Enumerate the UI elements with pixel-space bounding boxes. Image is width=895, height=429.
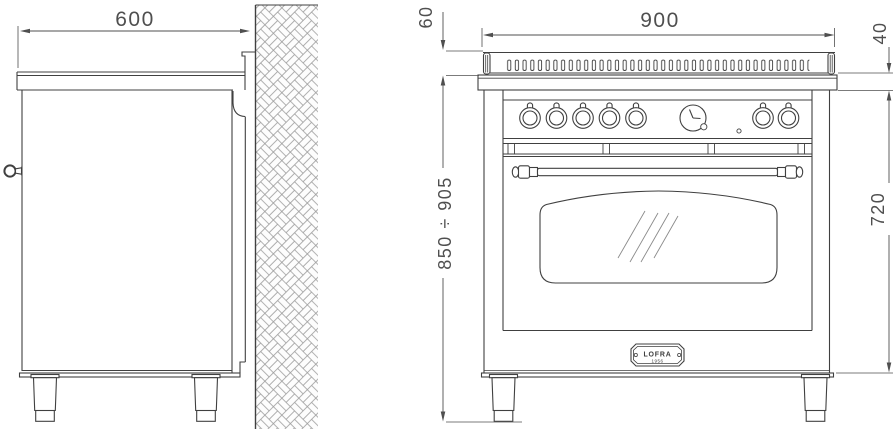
burner-knob	[546, 103, 567, 128]
wall-hatch	[256, 5, 319, 429]
backguard-rail	[483, 53, 835, 75]
door-top-strip	[503, 144, 812, 157]
burner-knob	[599, 103, 620, 128]
hinge-ticks	[508, 144, 805, 155]
leg	[192, 375, 220, 422]
badge-year-text: 1956	[651, 359, 663, 364]
oven-door	[503, 166, 812, 331]
badge-brand-text: LOFRA	[643, 352, 671, 359]
technical-drawing: 600	[0, 0, 895, 429]
door-window	[540, 191, 777, 283]
burner-knob	[520, 103, 541, 128]
dim-overall-height: 850 ÷ 905	[435, 76, 522, 423]
dim-worktop-edge-label: 40	[870, 21, 890, 44]
dim-depth: 600	[18, 8, 250, 68]
side-cooktop-band	[17, 72, 245, 90]
dim-depth-label: 600	[115, 8, 155, 31]
control-panel	[503, 100, 812, 139]
side-rear-spacer	[233, 91, 245, 373]
burner-knob	[626, 103, 647, 128]
leg	[31, 375, 59, 422]
dim-backguard-height: 60	[416, 5, 483, 51]
dim-backguard-label: 60	[416, 5, 436, 28]
brand-badge: LOFRA 1956	[631, 344, 684, 366]
dim-body-height: 720	[836, 91, 893, 374]
side-view	[4, 52, 255, 421]
front-view: LOFRA 1956	[478, 53, 837, 422]
side-door-handle-icon	[4, 165, 21, 176]
dim-body-height-label: 720	[868, 192, 888, 227]
dim-overall-height-label: 850 ÷ 905	[435, 176, 455, 269]
burner-knob	[778, 103, 799, 128]
front-cooktop-band	[478, 75, 837, 90]
window-reflection-icon	[618, 211, 678, 262]
door-handle	[512, 166, 802, 178]
dim-width-label: 900	[640, 9, 680, 32]
dim-width: 900	[482, 9, 835, 47]
leg	[802, 375, 830, 422]
leg	[490, 375, 518, 422]
clock-timer-icon	[680, 105, 707, 131]
side-body	[20, 90, 241, 377]
vent-slots	[505, 60, 809, 72]
dim-worktop-edge: 40	[838, 21, 893, 90]
burner-knob	[753, 103, 774, 128]
burner-knob	[573, 103, 594, 128]
side-backguard	[242, 52, 255, 90]
indicator-light	[737, 129, 741, 133]
